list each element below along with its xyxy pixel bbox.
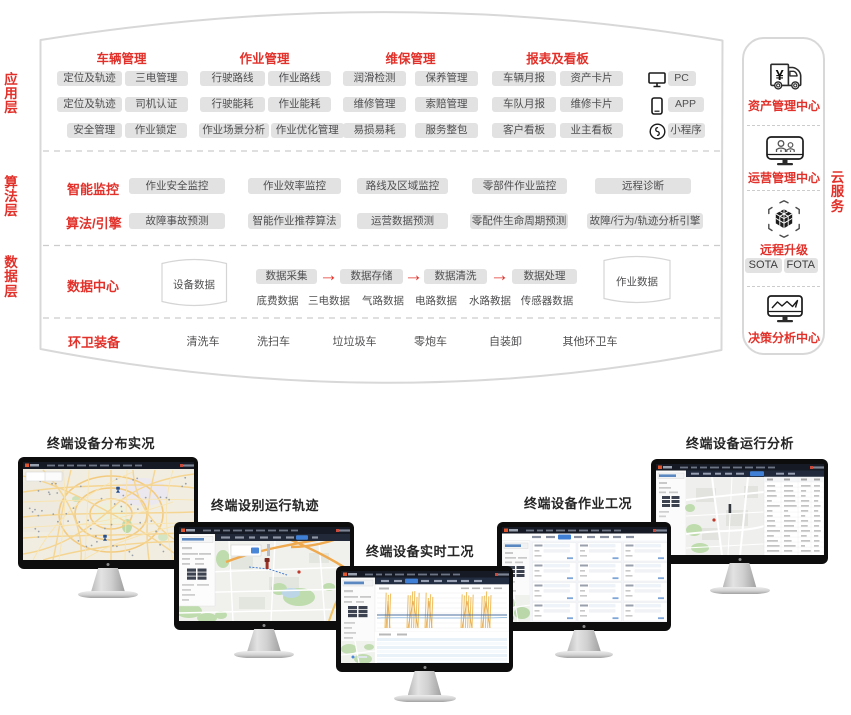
svg-text:¥: ¥ bbox=[775, 68, 783, 84]
